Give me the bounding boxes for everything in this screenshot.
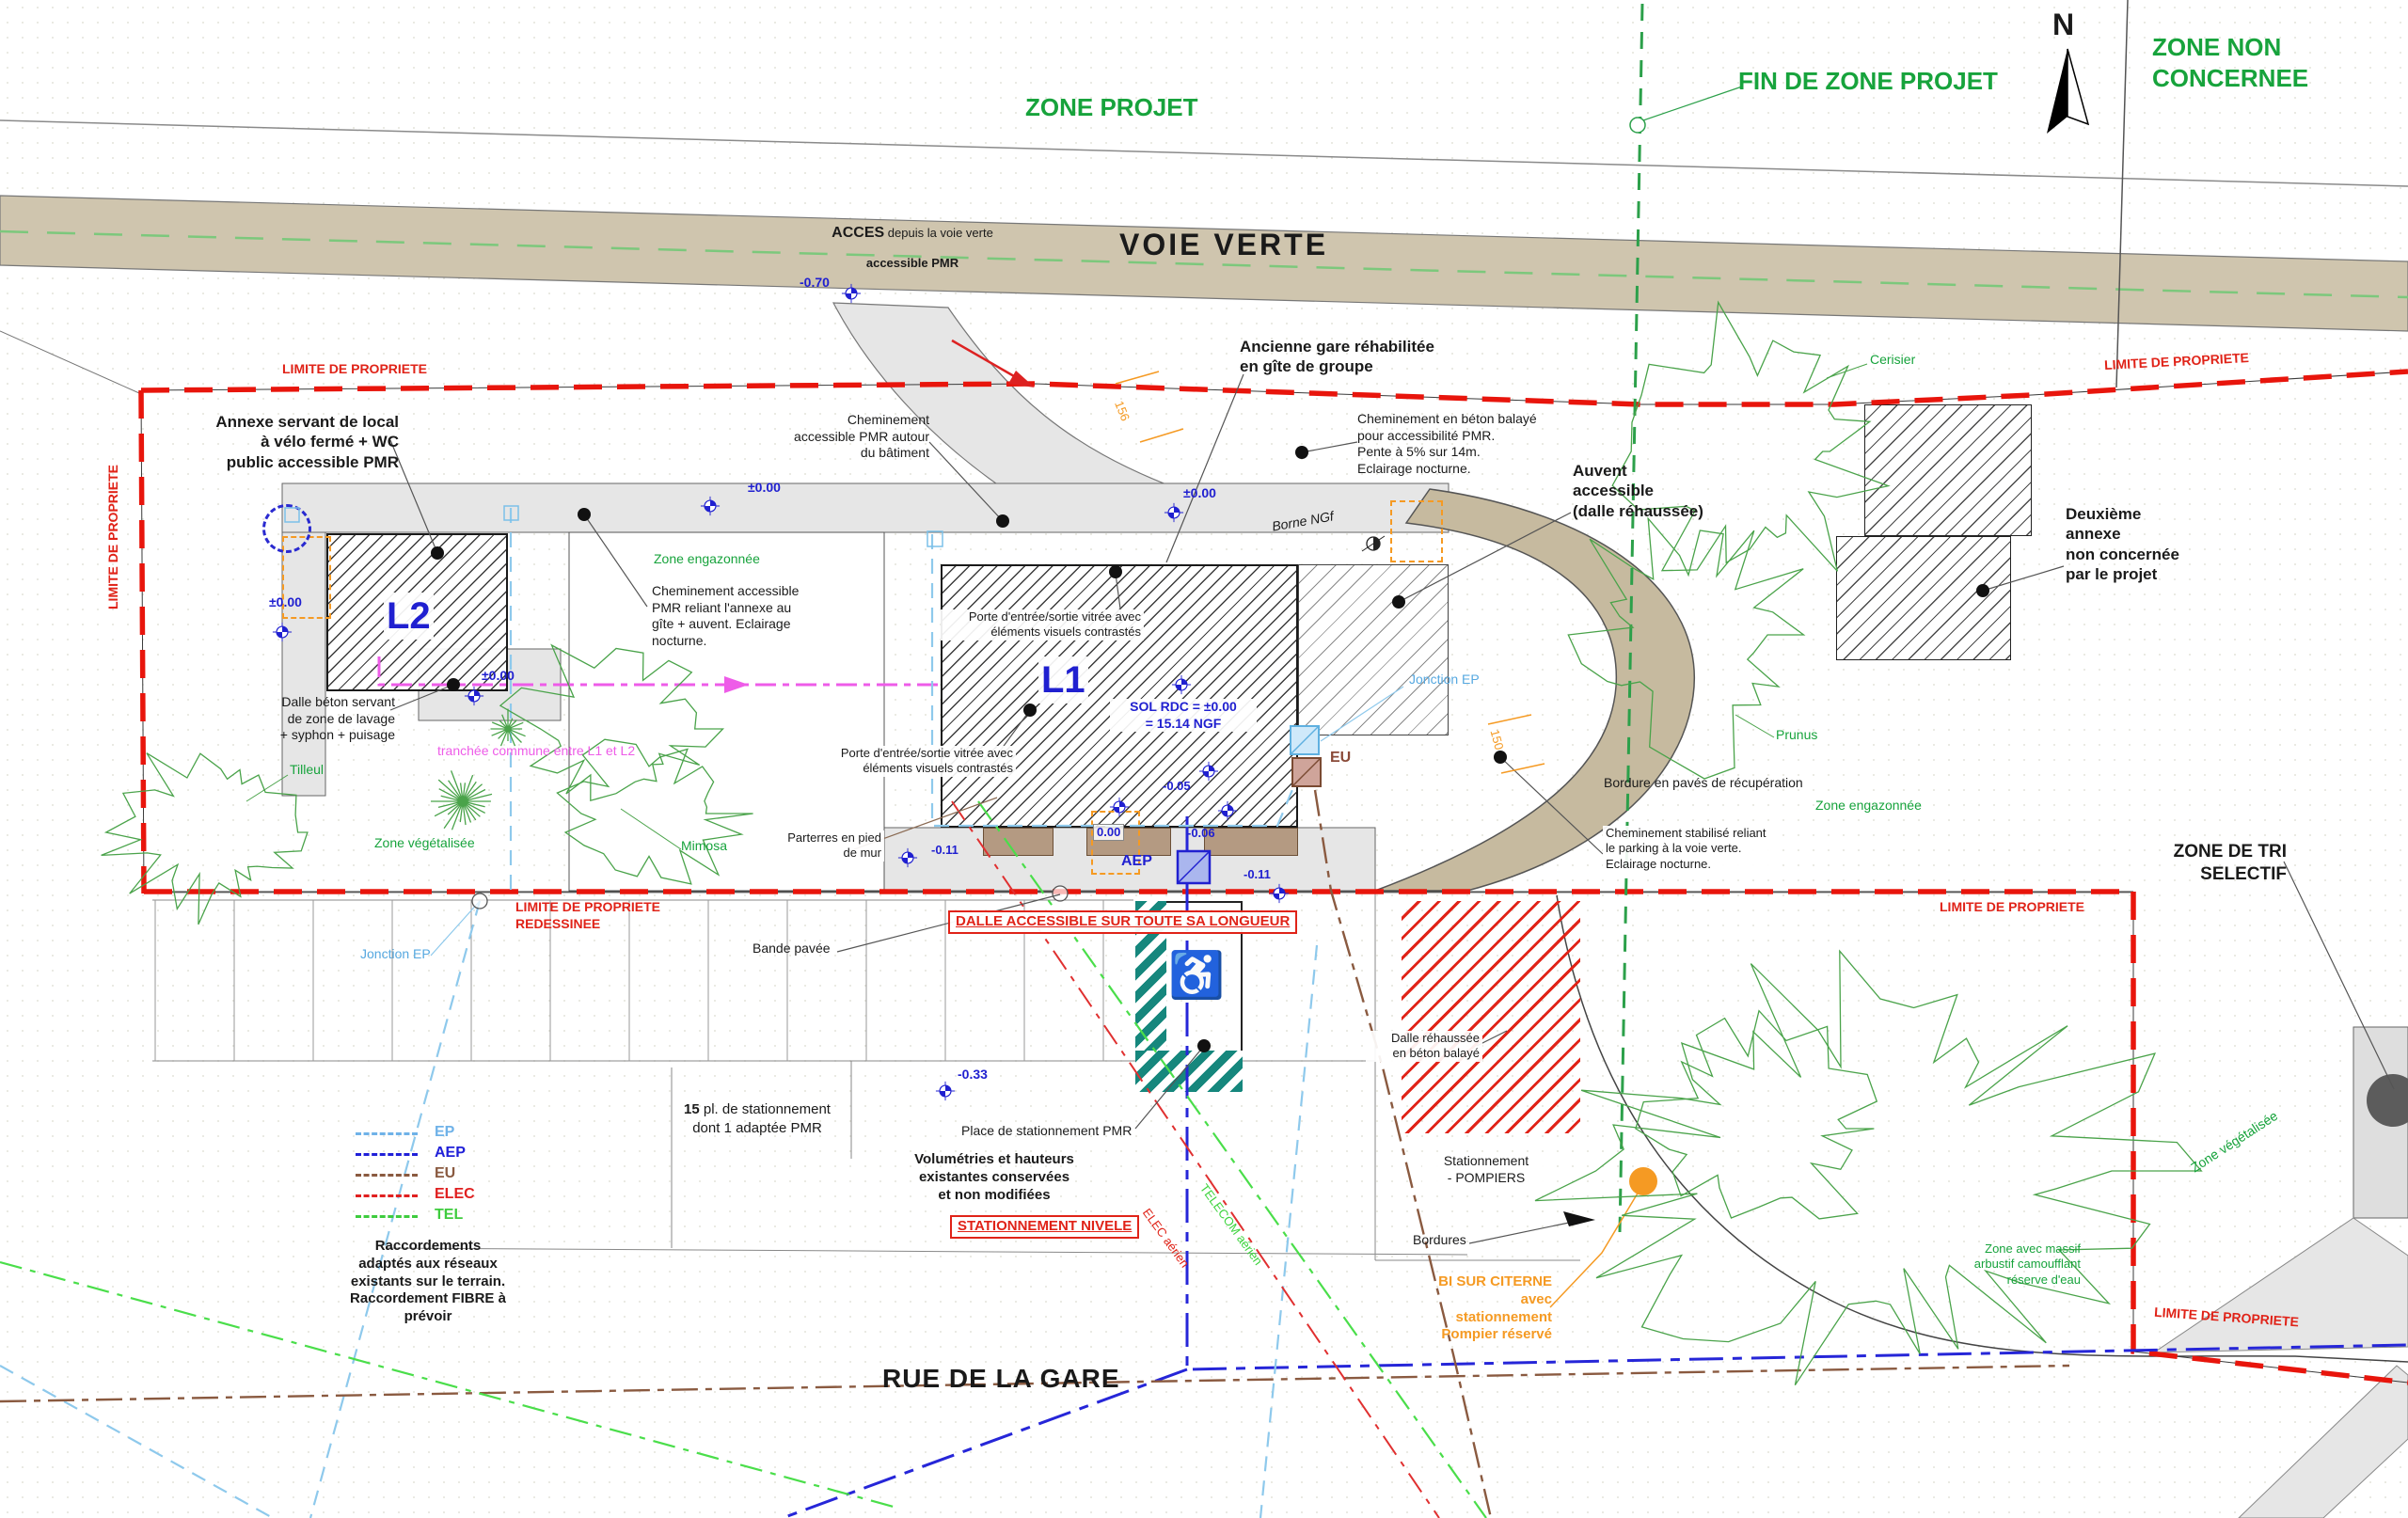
cerisier-label: Cerisier [1870, 352, 1915, 369]
massif-note: Zone avec massif arbustif camoufflant ré… [1958, 1241, 2081, 1288]
legend-label-tel: TEL [435, 1206, 463, 1225]
benchmark-markers [273, 284, 1289, 1100]
elev-070: -0.70 [800, 275, 830, 292]
annexe-note: Annexe servant de local à vélo fermé + W… [181, 412, 399, 472]
bi-citerne-dot [1629, 1167, 1657, 1195]
prunus-label: Prunus [1776, 727, 1817, 744]
legend-dash-elec [356, 1194, 418, 1197]
limite-redessinee: LIMITE DE PROPRIETE REDESSINEE [515, 899, 660, 932]
legend-label-aep: AEP [435, 1144, 466, 1162]
legend-dash-ep [356, 1132, 418, 1135]
dalle-lavage-note: Dalle béton servant de zone de lavage + … [271, 694, 395, 744]
dalle-accessible-box: DALLE ACCESSIBLE SUR TOUTE SA LONGUEUR [948, 910, 1297, 934]
legend-label-ep: EP [435, 1123, 454, 1142]
limite-1: LIMITE DE PROPRIETE [282, 361, 427, 378]
elev-000: 0.00 [1093, 824, 1124, 841]
ep-lines [0, 508, 1403, 1518]
elev-p000-3: ±0.00 [1183, 485, 1216, 502]
rue-de-la-gare-label: RUE DE LA GARE [882, 1362, 1120, 1395]
jonction-ep-2: Jonction EP [360, 946, 431, 963]
elev-p000-1: ±0.00 [748, 480, 781, 497]
chem-autour-note: Cheminement accessible PMR autour du bât… [745, 412, 929, 462]
elev-005: -0.05 [1163, 779, 1191, 794]
legend-label-eu: EU [435, 1164, 455, 1183]
acces-pmr-label: accessible PMR [804, 256, 1021, 271]
trench-line [379, 656, 941, 693]
ancienne-gare-note: Ancienne gare réhabilitée en gîte de gro… [1240, 337, 1434, 377]
north-letter: N [2052, 6, 2074, 43]
auvent-note: Auvent accessible (dalle réhaussée) [1573, 461, 1703, 521]
fin-zone-line [1620, 4, 1742, 1232]
borne-ngf-icon [1362, 536, 1385, 551]
zone-projet-label: ZONE PROJET [1025, 92, 1197, 123]
elev-p000-2: ±0.00 [269, 594, 302, 611]
chem-stab-note: Cheminement stabilisé reliant le parking… [1603, 826, 1769, 872]
zone-engazonnee-1: Zone engazonnée [654, 551, 760, 568]
fin-zone-label: FIN DE ZONE PROJET [1738, 66, 1998, 97]
acces-label: ACCES depuis la voie verte [804, 224, 1021, 243]
north-arrow-icon [2047, 49, 2088, 134]
chem-reliant-note: Cheminement accessible PMR reliant l'ann… [652, 583, 799, 649]
deuxieme-annexe-note: Deuxième annexe non concernée par le pro… [2066, 504, 2179, 584]
voie-verte-label: VOIE VERTE [1119, 226, 1328, 263]
legend-dash-tel [356, 1215, 418, 1218]
porte-note-1: Porte d'entrée/sortie vitrée avec élémen… [941, 609, 1144, 640]
bordures-arrowhead [1563, 1211, 1595, 1226]
legend-dash-aep [356, 1153, 418, 1156]
l1-label: L1 [1038, 656, 1088, 704]
sol-rdc-label: SOL RDC = ±0.00 = 15.14 NGF [1110, 699, 1257, 732]
place-pmr-note: Place de stationnement PMR [961, 1123, 1132, 1140]
zone-vegetalisee-1: Zone végétalisée [374, 835, 475, 852]
bordure-paves-note: Bordure en pavés de récupération [1604, 775, 1803, 792]
jonction-ep-1: Jonction EP [1409, 672, 1480, 688]
wheelchair-icon: ♿ [1168, 948, 1225, 1004]
tilleul-label: Tilleul [290, 762, 324, 779]
legend-dash-eu [356, 1174, 418, 1177]
bi-leader [1550, 1187, 1641, 1307]
elev-011-2: -0.11 [1244, 867, 1271, 882]
parking-count-note: 15 pl. de stationnementdont 1 adaptée PM… [668, 1100, 847, 1138]
elev-006: -0.06 [1187, 826, 1215, 841]
porte-note-2: Porte d'entrée/sortie vitrée avec élémen… [816, 746, 1016, 777]
parterres-note: Parterres en pied de mur [769, 830, 884, 862]
bordures-note: Bordures [1413, 1232, 1466, 1249]
bi-citerne-note: BI SUR CITERNE avec stationnement Pompie… [1430, 1273, 1552, 1344]
eu-node-label: EU [1330, 749, 1351, 767]
legend-label-elec: ELEC [435, 1185, 475, 1204]
mimosa-label: Mimosa [681, 838, 727, 855]
zone-non-concernee-label: ZONE NON CONCERNEE [2152, 32, 2308, 93]
site-plan: ZONE PROJET FIN DE ZONE PROJET ZONE NON … [0, 0, 2408, 1518]
tranchee-label: tranchée commune entre L1 et L2 [437, 743, 635, 760]
tel-line [0, 801, 1486, 1518]
zone-tri-label: ZONE DE TRI SELECTIF [2159, 841, 2287, 886]
stationnement-nivele-box: STATIONNEMENT NIVELE [950, 1215, 1139, 1239]
elev-011-1: -0.11 [931, 843, 958, 858]
access-arrow-icon [952, 340, 1035, 387]
bande-pavee-note: Bande pavée [752, 941, 831, 957]
stat-pompiers-note: Stationnement - POMPIERS [1422, 1153, 1550, 1186]
raccordements-note: Raccordements adaptés aux réseaux exista… [339, 1238, 517, 1326]
dalle-rehaussee-note: Dalle réhaussée en béton balayé [1366, 1031, 1482, 1062]
aep-node-label: AEP [1121, 852, 1152, 871]
l2-label: L2 [384, 593, 434, 640]
limite-4: LIMITE DE PROPRIETE [1940, 899, 2084, 916]
limite-3: LIMITE DE PROPRIETE [105, 440, 122, 609]
volumetries-note: Volumétries et hauteurs existantes conse… [914, 1151, 1074, 1204]
elev-p000-4: ±0.00 [482, 668, 515, 685]
zone-engazonnee-2: Zone engazonnée [1815, 798, 1922, 814]
elev-033: -0.33 [958, 1067, 988, 1083]
chem-beton-note: Cheminement en béton balayé pour accessi… [1357, 411, 1537, 477]
